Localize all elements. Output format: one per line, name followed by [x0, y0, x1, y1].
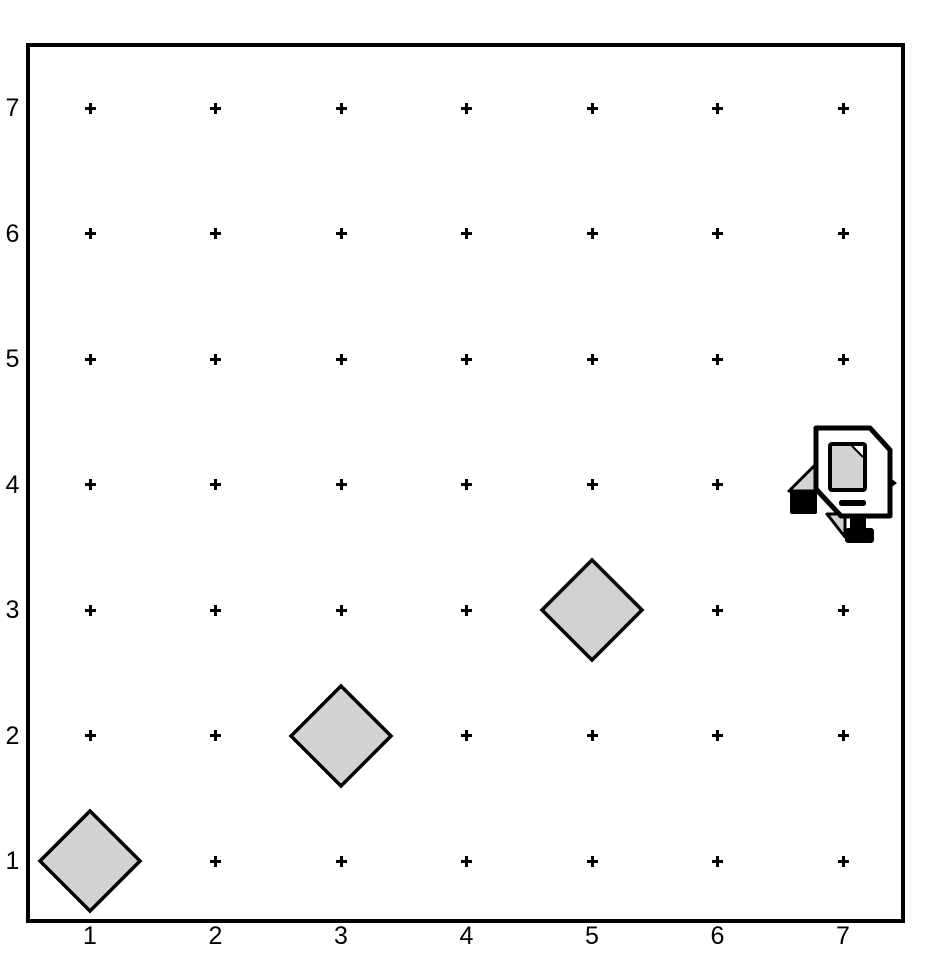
grid-point-marker [712, 730, 723, 741]
grid-point-marker [587, 228, 598, 239]
grid-point-marker [838, 856, 849, 867]
grid-point-marker [712, 605, 723, 616]
grid-point-marker [587, 103, 598, 114]
grid-point-marker [210, 103, 221, 114]
diamond-thing [35, 806, 145, 916]
grid-point-marker [210, 479, 221, 490]
grid-point-marker [336, 228, 347, 239]
robot-left-foot [790, 491, 817, 514]
grid-point-marker [85, 730, 96, 741]
grid-point-marker [210, 730, 221, 741]
grid-point-marker [461, 730, 472, 741]
grid-point-marker [587, 730, 598, 741]
robot-direction-pointer [889, 477, 897, 489]
y-axis-label: 6 [0, 221, 25, 247]
robot-arm [789, 464, 816, 491]
y-axis-label: 3 [0, 597, 25, 623]
x-axis-label: 1 [70, 923, 110, 949]
grid-point-marker [838, 354, 849, 365]
grid-point-marker [838, 605, 849, 616]
robot-icon [785, 418, 903, 548]
grid-point-marker [838, 730, 849, 741]
robot-mouth [839, 500, 866, 506]
grid-point-marker [461, 103, 472, 114]
grid-point-marker [587, 354, 598, 365]
diamond-thing [537, 555, 647, 665]
y-axis-label: 4 [0, 472, 25, 498]
grid-point-marker [461, 479, 472, 490]
grid-point-marker [712, 856, 723, 867]
grid-point-marker [210, 354, 221, 365]
grid-point-marker [336, 354, 347, 365]
grid-point-marker [210, 605, 221, 616]
y-axis-label: 7 [0, 95, 25, 121]
grid-point-marker [712, 479, 723, 490]
grid-point-marker [85, 354, 96, 365]
x-axis-label: 7 [823, 923, 863, 949]
grid-point-marker [838, 228, 849, 239]
grid-point-marker [336, 103, 347, 114]
diamond-thing [286, 681, 396, 791]
grid-point-marker [461, 354, 472, 365]
grid-point-marker [210, 228, 221, 239]
grid-point-marker [587, 479, 598, 490]
grid-point-marker [587, 856, 598, 867]
grid-point-marker [461, 856, 472, 867]
grid-point-marker [461, 605, 472, 616]
x-axis-label: 2 [196, 923, 236, 949]
grid-point-marker [336, 856, 347, 867]
grid-point-marker [838, 103, 849, 114]
x-axis-label: 3 [321, 923, 361, 949]
grid-point-marker [336, 479, 347, 490]
y-axis-label: 1 [0, 848, 25, 874]
grid-point-marker [461, 228, 472, 239]
grid-point-marker [85, 228, 96, 239]
x-axis-label: 4 [447, 923, 487, 949]
x-axis-label: 5 [572, 923, 612, 949]
y-axis-label: 2 [0, 723, 25, 749]
grid-point-marker [712, 354, 723, 365]
y-axis-label: 5 [0, 346, 25, 372]
grid-point-marker [85, 479, 96, 490]
grid-point-marker [210, 856, 221, 867]
grid-point-marker [85, 605, 96, 616]
grid-point-marker [85, 103, 96, 114]
x-axis-label: 6 [698, 923, 738, 949]
grid-point-marker [336, 605, 347, 616]
grid-point-marker [712, 228, 723, 239]
grid-point-marker [712, 103, 723, 114]
robot-boot-lower [845, 528, 874, 543]
robot-world-stage: 1234567 7654321 [0, 0, 928, 962]
